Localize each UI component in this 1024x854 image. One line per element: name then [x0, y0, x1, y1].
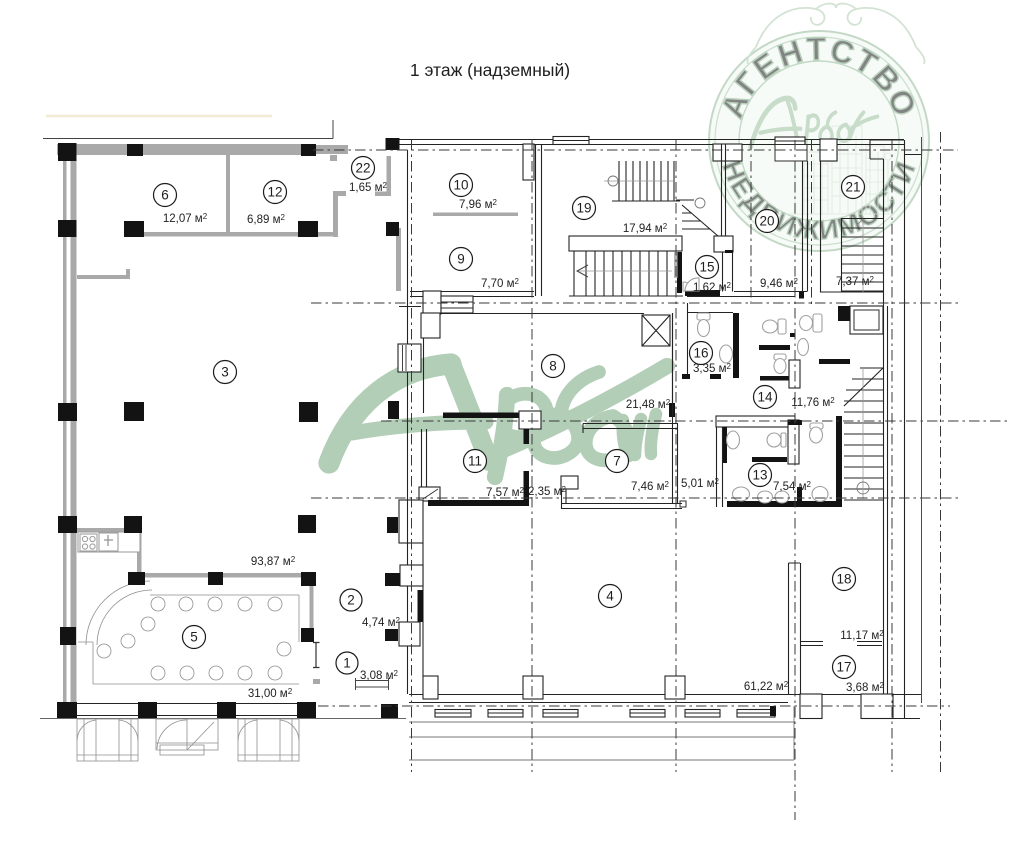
svg-text:22: 22	[355, 161, 370, 176]
svg-text:5,01 м2: 5,01 м2	[681, 477, 719, 490]
svg-text:9,46 м2: 9,46 м2	[760, 277, 798, 290]
svg-text:20: 20	[759, 214, 774, 229]
svg-text:93,87 м2: 93,87 м2	[251, 555, 296, 568]
svg-text:1 этаж (надземный): 1 этаж (надземный)	[410, 60, 570, 80]
svg-text:1,65 м2: 1,65 м2	[349, 181, 387, 194]
svg-text:6: 6	[161, 188, 169, 203]
svg-text:61,22 м2: 61,22 м2	[744, 680, 789, 693]
svg-text:6,89 м2: 6,89 м2	[247, 213, 285, 226]
svg-text:14: 14	[757, 390, 773, 405]
svg-text:7,57 м2: 7,57 м2	[486, 486, 524, 499]
svg-text:19: 19	[576, 201, 591, 216]
svg-text:4: 4	[606, 589, 614, 604]
svg-text:31,00 м2: 31,00 м2	[248, 687, 293, 700]
svg-text:8: 8	[549, 359, 557, 374]
svg-text:5: 5	[190, 630, 198, 645]
svg-text:7: 7	[613, 454, 621, 469]
svg-text:11: 11	[468, 454, 482, 469]
svg-text:11,17 м2: 11,17 м2	[840, 629, 884, 642]
svg-text:11,76 м2: 11,76 м2	[791, 396, 835, 409]
svg-text:15: 15	[699, 260, 714, 275]
svg-text:17: 17	[836, 660, 851, 675]
svg-text:21,48 м2: 21,48 м2	[626, 398, 671, 411]
svg-text:17,94 м2: 17,94 м2	[623, 222, 668, 235]
svg-text:3: 3	[221, 365, 229, 380]
svg-text:7,70 м2: 7,70 м2	[481, 277, 519, 290]
svg-text:7,37 м2: 7,37 м2	[836, 275, 874, 288]
svg-text:10: 10	[453, 178, 468, 193]
svg-text:7,96 м2: 7,96 м2	[459, 198, 497, 211]
svg-text:3,35 м2: 3,35 м2	[693, 362, 731, 375]
svg-text:21: 21	[845, 180, 860, 195]
svg-text:4,74 м2: 4,74 м2	[362, 616, 400, 629]
svg-text:3,08 м2: 3,08 м2	[360, 669, 398, 682]
svg-text:7,54 м2: 7,54 м2	[773, 480, 811, 493]
svg-text:12: 12	[267, 185, 282, 200]
svg-text:12,07 м2: 12,07 м2	[163, 212, 208, 225]
svg-text:16: 16	[693, 346, 708, 361]
svg-text:2: 2	[347, 593, 355, 608]
svg-text:18: 18	[836, 572, 851, 587]
svg-text:9: 9	[457, 252, 465, 267]
svg-text:1,62 м2: 1,62 м2	[693, 281, 731, 294]
svg-text:1: 1	[343, 656, 351, 671]
svg-text:2,35 м2: 2,35 м2	[528, 485, 566, 498]
svg-text:3,68 м2: 3,68 м2	[846, 681, 884, 694]
svg-text:13: 13	[752, 468, 767, 483]
svg-text:7,46 м2: 7,46 м2	[631, 480, 669, 493]
